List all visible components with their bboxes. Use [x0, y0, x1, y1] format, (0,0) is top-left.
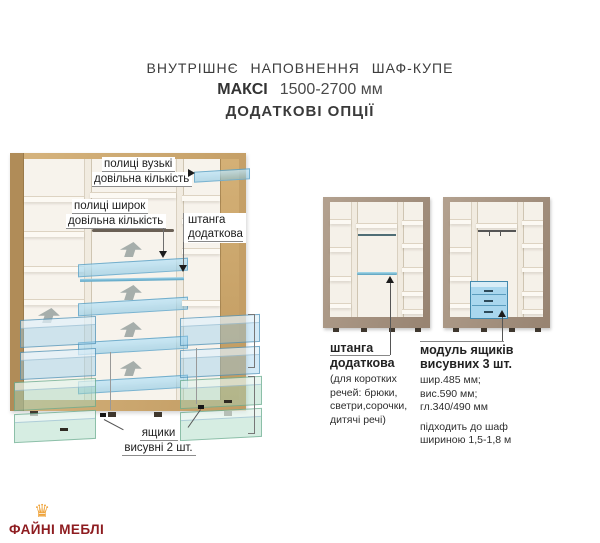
label-line: полиці широк [72, 199, 148, 214]
crown-icon: ♛ [34, 502, 50, 520]
shelf [402, 220, 423, 225]
shelf [522, 243, 543, 248]
wardrobe-foot [509, 328, 515, 332]
bracket-tick [248, 376, 255, 377]
shelf [402, 243, 423, 248]
wardrobe-foot [481, 328, 487, 332]
option-rod-wardrobe-illustration [323, 197, 430, 328]
wardrobe-foot [154, 412, 162, 417]
page-subtitle: ДОДАТКОВІ ОПЦІЇ [100, 103, 500, 120]
optional-drawer [20, 316, 96, 348]
option-desc-line: речей: брюки, [330, 387, 418, 401]
optional-drawer [180, 314, 260, 346]
label-line: додаткова [188, 227, 243, 242]
rod-hook [489, 232, 490, 236]
wardrobe-foot [333, 328, 339, 332]
shelf [522, 267, 543, 272]
optional-drawer [180, 346, 260, 378]
label-line: довільна кількість [92, 172, 192, 187]
option-title: штанга [330, 341, 390, 356]
hanging-rod [358, 234, 396, 236]
label-drawers: ящики висувні 2 шт. [116, 426, 202, 456]
optional-drawer-green [180, 376, 262, 409]
bracket-line [254, 376, 255, 434]
option-desc-line: светри,сорочки, [330, 400, 418, 414]
shelf [330, 247, 351, 252]
shelf [522, 309, 543, 314]
wardrobe-foot [415, 328, 421, 332]
shelf [522, 220, 543, 225]
label-line: висувні 2 шт. [122, 441, 195, 456]
leader-line [183, 242, 184, 266]
shelf [450, 247, 471, 252]
shelf [476, 223, 517, 228]
bracket-tick [248, 314, 255, 315]
bracket-line [196, 348, 197, 404]
drawer-separator [472, 294, 506, 295]
option-title: додаткова [330, 356, 418, 370]
drawer-separator [472, 305, 506, 306]
leader-line [163, 228, 164, 252]
option-spec-line: гл.340/490 мм [420, 401, 538, 415]
model-size-range: 1500-2700 мм [280, 81, 383, 98]
leader-endpoint [100, 413, 106, 417]
option-desc-line: (для коротких [330, 373, 418, 387]
optional-drawer-green [14, 410, 96, 443]
option-drawers-wardrobe-illustration [443, 197, 550, 328]
drawer-handle [224, 400, 232, 403]
wardrobe-foot [453, 328, 459, 332]
shelf [182, 248, 220, 254]
label-line: ящики [140, 426, 179, 441]
bracket-tick [248, 433, 255, 434]
wardrobe-foot [535, 328, 541, 332]
label-line: довільна кількість [66, 214, 166, 229]
label-line: полиці вузькі [102, 157, 175, 172]
shelf [330, 303, 351, 308]
shelf [24, 231, 84, 237]
wardrobe-foot [108, 412, 116, 417]
shelf [450, 303, 471, 308]
model-line: МАКСІ1500-2700 мм [100, 81, 500, 99]
catalog-page: ВНУТРІШНЄ НАПОВНЕННЯ ШАФ-КУПЕ МАКСІ1500-… [0, 0, 600, 543]
label-line: штанга [188, 213, 243, 227]
label-narrow-shelves: полиці вузькі довільна кількість [92, 157, 192, 187]
rod-hook [500, 232, 501, 236]
shelf [450, 219, 471, 224]
bracket-line [254, 314, 255, 368]
shelf [402, 309, 423, 314]
pointer-down-icon [179, 265, 187, 272]
brand-logo: ФАЙНІ МЕБЛІ [9, 522, 104, 537]
optional-drawer-green [14, 378, 96, 411]
option-title: висувних 3 шт. [420, 357, 538, 371]
shelf [182, 300, 220, 306]
page-title: ВНУТРІШНЄ НАПОВНЕННЯ ШАФ-КУПЕ [100, 60, 500, 76]
hanging-rod [478, 230, 516, 232]
option-spec-line: вис.590 мм; [420, 388, 538, 402]
pointer-up-icon [386, 276, 394, 283]
page-header: ВНУТРІШНЄ НАПОВНЕННЯ ШАФ-КУПЕ МАКСІ1500-… [100, 60, 500, 120]
shelf [402, 267, 423, 272]
wardrobe-foot [361, 328, 367, 332]
shelf [24, 266, 84, 272]
leader-line [502, 317, 503, 341]
pointer-right-icon [188, 169, 195, 177]
label-wide-shelves: полиці широк довільна кількість [66, 199, 166, 229]
option-rod-text: штанга додаткова (для коротких речей: бр… [330, 341, 418, 427]
pointer-up-icon [498, 310, 506, 317]
pointer-down-icon [159, 251, 167, 258]
shelf [356, 223, 397, 228]
option-spec-line: шир.485 мм; [420, 374, 538, 388]
shelf [330, 276, 351, 281]
main-wardrobe-illustration [8, 150, 268, 450]
option-note-line: підходить до шаф [420, 421, 538, 435]
drawer-handle [484, 290, 493, 292]
optional-drawer [20, 348, 96, 380]
leader-endpoint [198, 405, 204, 409]
shelf [402, 291, 423, 296]
option-drawer-module-text: модуль ящиків висувних 3 шт. шир.485 мм;… [420, 341, 538, 448]
option-desc-line: дитячі речі) [330, 414, 418, 428]
vertical-divider [351, 202, 358, 317]
extra-rod-highlight [357, 272, 397, 275]
bracket-tick [248, 367, 255, 368]
shelf [450, 276, 471, 281]
hanging-rod [92, 229, 174, 232]
bracket-line [110, 352, 111, 410]
shelf [182, 195, 220, 201]
shelf [90, 192, 176, 198]
drawer-handle [484, 300, 493, 302]
shelf [330, 219, 351, 224]
model-name: МАКСІ [217, 81, 267, 98]
drawer-handle [484, 311, 493, 313]
label-extra-rod: штанга додаткова [183, 213, 246, 243]
option-note-line: шириною 1,5-1,8 м [420, 434, 538, 448]
shelf [24, 299, 84, 305]
drawer-handle [60, 428, 68, 431]
option-title: модуль ящиків [420, 341, 504, 357]
shelf [522, 291, 543, 296]
